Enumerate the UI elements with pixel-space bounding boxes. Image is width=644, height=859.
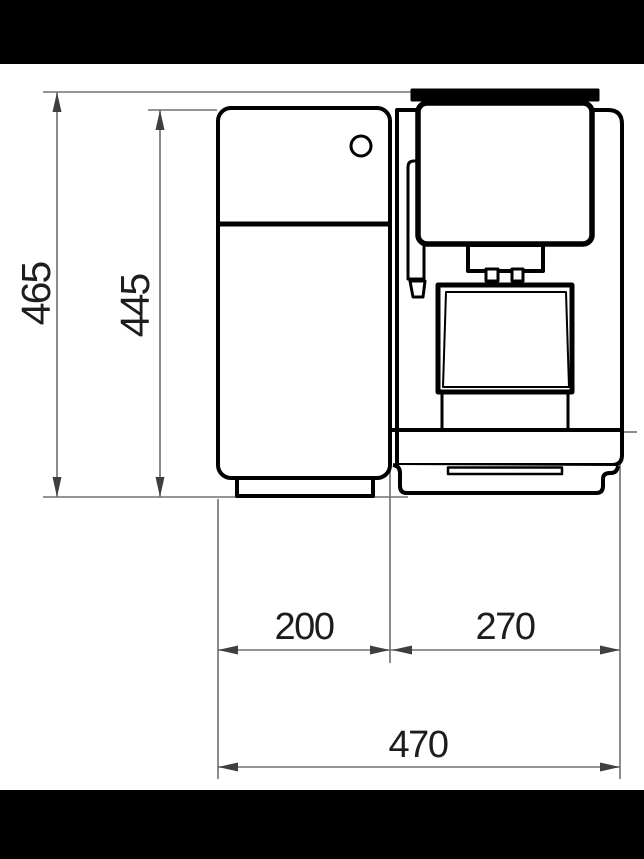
rear-foot <box>237 478 373 496</box>
arrowhead-200-left <box>218 646 238 655</box>
arrowhead-200-right <box>370 646 390 655</box>
rear-body-outline <box>218 108 390 478</box>
arrowhead-445-up <box>156 110 165 130</box>
arrowhead-445-down <box>156 477 165 497</box>
cup-recess <box>438 285 572 392</box>
coffee-spout <box>468 245 543 271</box>
spout-nozzle-left <box>486 269 498 281</box>
arrowhead-270-left <box>392 646 412 655</box>
dim-label-200: 200 <box>275 606 334 648</box>
arrowhead-470-right <box>600 763 620 772</box>
milk-spout-tip <box>410 281 425 297</box>
dim-label-465: 465 <box>13 262 59 326</box>
arrowhead-465-down <box>53 477 62 497</box>
finger-hole <box>351 136 371 156</box>
arrowhead-270-right <box>600 646 620 655</box>
spout-nozzle-right <box>512 269 523 281</box>
dim-label-445: 445 <box>112 274 158 338</box>
arrowhead-465-up <box>53 92 62 112</box>
drip-tray-slot <box>448 468 562 475</box>
front-panel <box>418 103 592 244</box>
dim-label-470: 470 <box>389 724 448 766</box>
dim-label-270: 270 <box>476 606 535 648</box>
machine-outline-group <box>218 90 622 496</box>
drawing-canvas: 465 445 200 270 470 <box>0 0 644 859</box>
arrowhead-470-left <box>218 763 238 772</box>
dimension-drawing: 465 445 200 270 470 <box>0 0 644 859</box>
top-lid <box>412 90 598 100</box>
